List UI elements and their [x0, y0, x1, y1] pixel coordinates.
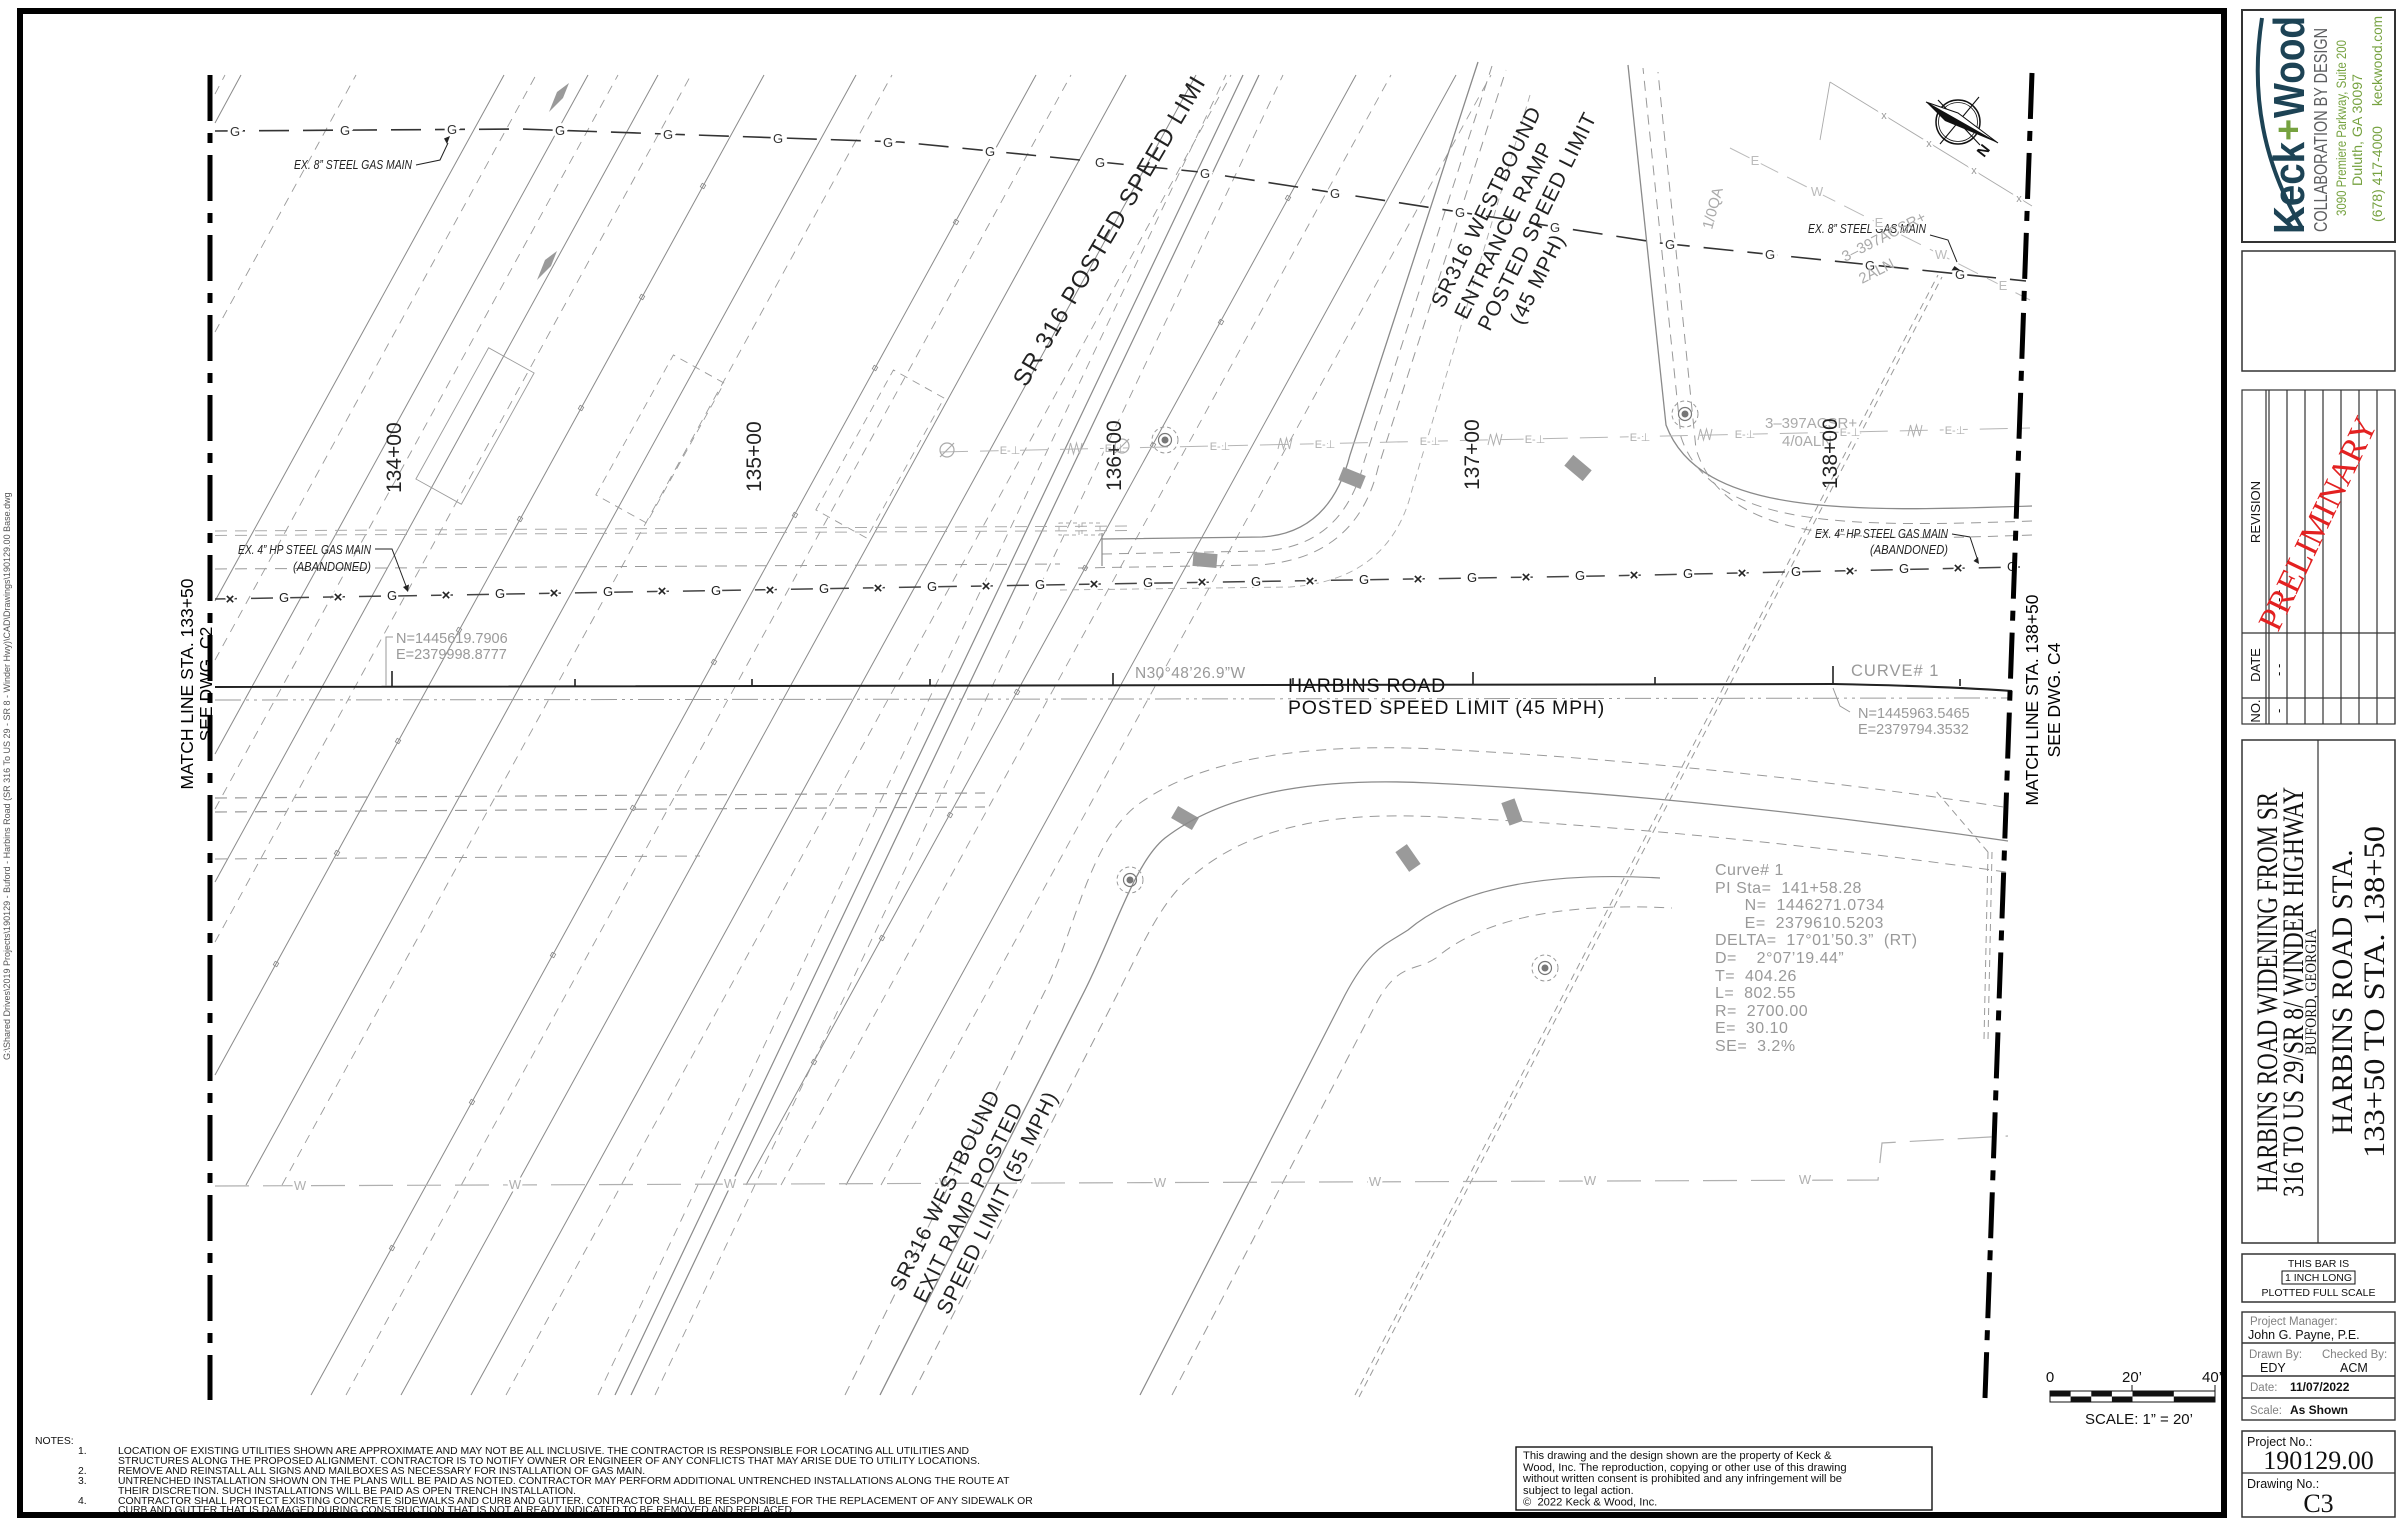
svg-text:MATCH LINE STA. 133+50: MATCH LINE STA. 133+50 — [177, 578, 197, 789]
svg-text:137+00: 137+00 — [1461, 419, 1484, 490]
svg-text:NO.: NO. — [2248, 699, 2263, 722]
svg-text:W: W — [509, 1177, 522, 1192]
svg-text:×: × — [1954, 560, 1963, 577]
svg-text:E=2379794.3532: E=2379794.3532 — [1858, 722, 1969, 738]
svg-text:John G. Payne, P.E.: John G. Payne, P.E. — [2248, 1328, 2360, 1342]
svg-text:Scale:: Scale: — [2250, 1405, 2282, 1417]
svg-text:SEE DWG. C4: SEE DWG. C4 — [2044, 642, 2064, 757]
svg-text:11/07/2022: 11/07/2022 — [2290, 1380, 2350, 1394]
svg-text:G: G — [711, 583, 721, 598]
svg-text:x: x — [1926, 138, 1932, 150]
svg-text:G: G — [387, 588, 397, 603]
svg-text:(ABANDONED): (ABANDONED) — [293, 560, 371, 574]
svg-text:G: G — [447, 122, 457, 137]
svg-text:0: 0 — [2046, 1369, 2054, 1386]
svg-text:PI Sta= 141+58.28: PI Sta= 141+58.28 — [1715, 880, 1862, 897]
svg-text:C3: C3 — [2303, 1489, 2333, 1518]
svg-text:E: E — [1999, 278, 2008, 293]
svg-text:×: × — [1306, 573, 1315, 590]
svg-text:Checked By:: Checked By: — [2322, 1349, 2387, 1361]
svg-text:×: × — [1738, 565, 1747, 582]
svg-text:SE= 3.2%: SE= 3.2% — [1715, 1038, 1796, 1055]
svg-text:138+00: 138+00 — [1819, 418, 1842, 489]
svg-text:×: × — [334, 589, 343, 606]
svg-text:PLOTTED FULL SCALE: PLOTTED FULL SCALE — [2262, 1287, 2376, 1299]
svg-text:EX. 4” HP STEEL GAS MAIN: EX. 4” HP STEEL GAS MAIN — [238, 543, 372, 557]
svg-text:G: G — [340, 123, 350, 138]
svg-text:×: × — [1090, 576, 1099, 593]
svg-text:G: G — [555, 123, 565, 138]
svg-text:3.: 3. — [78, 1476, 87, 1487]
svg-text:4.: 4. — [78, 1496, 87, 1507]
svg-text:E: E — [1751, 153, 1760, 168]
svg-text:G: G — [1791, 564, 1801, 579]
svg-text:G: G — [1899, 561, 1909, 576]
svg-text:E-⊥: E-⊥ — [1210, 441, 1231, 453]
svg-text:3–397ACSR+: 3–397ACSR+ — [1765, 415, 1857, 432]
svg-text:DATE: DATE — [2248, 648, 2263, 682]
svg-text:CURVE# 1: CURVE# 1 — [1851, 662, 1939, 680]
svg-text:EDY: EDY — [2260, 1361, 2286, 1375]
svg-text:Wood: Wood — [2265, 16, 2314, 118]
svg-text:×: × — [1198, 574, 1207, 591]
svg-text:G: G — [1200, 166, 1210, 181]
svg-text:3090 Premiere Parkway, Suite 2: 3090 Premiere Parkway, Suite 200 — [2333, 40, 2349, 216]
svg-text:G: G — [1035, 577, 1045, 592]
svg-text:W: W — [1811, 184, 1824, 199]
svg-text:x: x — [1971, 165, 1977, 177]
svg-text:N30°48’26.9”W: N30°48’26.9”W — [1135, 665, 1245, 682]
svg-text:E-⊥: E-⊥ — [1525, 434, 1546, 446]
svg-text:G: G — [1765, 247, 1775, 262]
svg-text:N=1445619.7906: N=1445619.7906 — [396, 631, 508, 647]
svg-text:W: W — [1369, 1174, 1382, 1189]
svg-text:×: × — [982, 578, 991, 595]
svg-text:G: G — [1095, 155, 1105, 170]
svg-text:G: G — [279, 590, 289, 605]
svg-text:G: G — [495, 586, 505, 601]
svg-text:W: W — [724, 1176, 737, 1191]
svg-text:G: G — [230, 124, 240, 139]
svg-text:-: - — [2271, 709, 2286, 713]
svg-text:G: G — [1575, 568, 1585, 583]
svg-text:SCALE: 1” = 20’: SCALE: 1” = 20’ — [2085, 1411, 2193, 1428]
svg-text:COLLABORATION BY DESIGN: COLLABORATION BY DESIGN — [2311, 28, 2331, 232]
svg-text:G: G — [1330, 186, 1340, 201]
svg-text:136+00: 136+00 — [1103, 420, 1126, 491]
svg-text:G: G — [1143, 575, 1153, 590]
svg-text:×: × — [1846, 563, 1855, 580]
svg-text:G: G — [1455, 205, 1465, 220]
svg-text:G: G — [1665, 237, 1675, 252]
svg-text:E-⊥: E-⊥ — [1630, 432, 1651, 444]
svg-text:×: × — [1522, 569, 1531, 586]
svg-text:REVISION: REVISION — [2248, 481, 2263, 543]
svg-text:×: × — [226, 591, 235, 608]
svg-text:E-⊥: E-⊥ — [1420, 436, 1441, 448]
svg-text:Duluth, GA 30097: Duluth, GA 30097 — [2349, 74, 2365, 186]
svg-text:G: G — [1251, 574, 1261, 589]
svg-text:40’: 40’ — [2202, 1369, 2222, 1386]
svg-text:W: W — [1154, 1175, 1167, 1190]
svg-text:190129.00: 190129.00 — [2263, 1446, 2374, 1475]
svg-text:133+50 TO STA. 138+50: 133+50 TO STA. 138+50 — [2358, 826, 2391, 1158]
svg-text:x: x — [2016, 193, 2022, 205]
svg-text:© 2022 Keck & Wood, Inc.: © 2022 Keck & Wood, Inc. — [1523, 1497, 1657, 1509]
svg-text:20’: 20’ — [2122, 1369, 2142, 1386]
svg-text:subject to legal action.: subject to legal action. — [1523, 1485, 1634, 1497]
svg-text:This drawing and the design sh: This drawing and the design shown are th… — [1523, 1450, 1832, 1462]
svg-text:135+00: 135+00 — [743, 421, 766, 492]
svg-text:E-⊥: E-⊥ — [1315, 439, 1336, 451]
svg-text:W: W — [1799, 1172, 1812, 1187]
svg-text:×: × — [658, 583, 667, 600]
svg-text:G: G — [819, 581, 829, 596]
svg-text:Drawn By:: Drawn By: — [2249, 1349, 2302, 1361]
svg-text:G: G — [1683, 566, 1693, 581]
svg-text:T= 404.26: T= 404.26 — [1715, 968, 1797, 985]
svg-text:E-⊥: E-⊥ — [1945, 425, 1966, 437]
svg-text:G: G — [985, 144, 995, 159]
svg-text:Curve# 1: Curve# 1 — [1715, 862, 1784, 879]
svg-text:E-⊥: E-⊥ — [1735, 429, 1756, 441]
svg-text:×: × — [766, 582, 775, 599]
svg-text:1 INCH LONG: 1 INCH LONG — [2285, 1272, 2352, 1284]
svg-text:NOTES:: NOTES: — [35, 1436, 74, 1447]
svg-text:POSTED SPEED LIMIT (45 MPH): POSTED SPEED LIMIT (45 MPH) — [1288, 697, 1605, 719]
svg-text:HARBINS ROAD STA.: HARBINS ROAD STA. — [2326, 850, 2359, 1135]
svg-text:Keck: Keck — [2265, 142, 2314, 234]
svg-text:1.: 1. — [78, 1446, 87, 1457]
svg-text:DELTA= 17°01’50.3” (RT): DELTA= 17°01’50.3” (RT) — [1715, 932, 1918, 949]
svg-text:E=2379998.8777: E=2379998.8777 — [396, 647, 507, 663]
svg-text:G:\Shared Drives\2019 Projects: G:\Shared Drives\2019 Projects\190129 - … — [2, 492, 12, 1060]
svg-text:Project Manager:: Project Manager: — [2250, 1316, 2338, 1328]
svg-text:N= 1446271.0734: N= 1446271.0734 — [1715, 897, 1885, 914]
svg-text:EX. 8” STEEL GAS MAIN: EX. 8” STEEL GAS MAIN — [294, 158, 413, 172]
svg-text:(ABANDONED): (ABANDONED) — [1870, 543, 1948, 557]
svg-text:E-⊥: E-⊥ — [1000, 445, 1021, 457]
svg-text:×: × — [874, 580, 883, 597]
svg-text:SEE DWG. C2: SEE DWG. C2 — [196, 627, 216, 742]
svg-text:G: G — [1359, 572, 1369, 587]
svg-text:MATCH LINE STA. 138+50: MATCH LINE STA. 138+50 — [2022, 594, 2042, 805]
svg-text:ACM: ACM — [2340, 1361, 2368, 1375]
svg-text:W: W — [1584, 1173, 1597, 1188]
svg-text:N=1445963.5465: N=1445963.5465 — [1858, 706, 1970, 722]
svg-text:G: G — [603, 584, 613, 599]
svg-text:(678) 417-4000: (678) 417-4000 — [2369, 126, 2385, 222]
svg-text:×: × — [442, 587, 451, 604]
svg-text:×: × — [1630, 567, 1639, 584]
svg-text:CURB AND GUTTER THAT IS DAMAGE: CURB AND GUTTER THAT IS DAMAGED DURING C… — [118, 1505, 795, 1516]
svg-text:Date:: Date: — [2250, 1382, 2278, 1394]
svg-text:As Shown: As Shown — [2290, 1403, 2348, 1417]
svg-text:- -: - - — [2271, 664, 2286, 676]
svg-text:G: G — [927, 579, 937, 594]
svg-text:×: × — [1414, 571, 1423, 588]
svg-text:without written consent is pro: without written consent is prohibited an… — [1522, 1473, 1842, 1485]
svg-text:G: G — [773, 131, 783, 146]
svg-text:134+00: 134+00 — [383, 422, 406, 493]
svg-text:D= 2°07’19.44”: D= 2°07’19.44” — [1715, 950, 1844, 967]
svg-text:E: E — [1875, 215, 1884, 230]
svg-text:+: + — [2268, 119, 2310, 141]
svg-text:G: G — [663, 127, 673, 142]
svg-text:W: W — [294, 1178, 307, 1193]
svg-text:keckwood.com: keckwood.com — [2369, 16, 2385, 106]
svg-text:W: W — [1935, 247, 1948, 262]
svg-text:R= 2700.00: R= 2700.00 — [1715, 1003, 1808, 1020]
svg-text:G: G — [883, 135, 893, 150]
svg-text:L= 802.55: L= 802.55 — [1715, 985, 1796, 1002]
svg-text:G: G — [1467, 570, 1477, 585]
svg-text:×: × — [550, 585, 559, 602]
svg-text:E= 2379610.5203: E= 2379610.5203 — [1715, 915, 1884, 932]
svg-text:BUFORD, GEORGIA: BUFORD, GEORGIA — [2303, 929, 2320, 1055]
svg-text:E= 30.10: E= 30.10 — [1715, 1020, 1788, 1037]
svg-text:HARBINS ROAD: HARBINS ROAD — [1288, 675, 1446, 697]
svg-text:THIS BAR IS: THIS BAR IS — [2288, 1258, 2349, 1270]
svg-text:EX. 4” HP STEEL GAS MAIN: EX. 4” HP STEEL GAS MAIN — [1815, 527, 1949, 541]
svg-text:x: x — [1881, 110, 1887, 122]
